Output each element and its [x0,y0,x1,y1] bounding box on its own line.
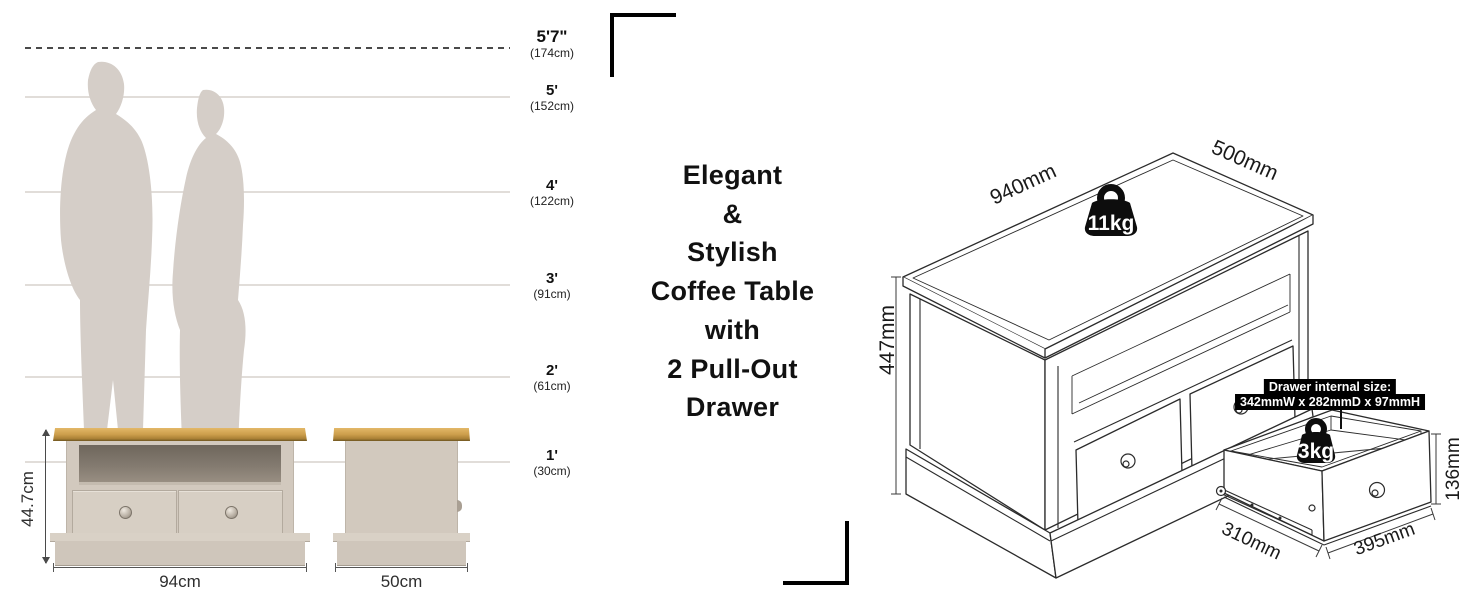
dimension-tick [53,563,54,572]
height-marker-cm: (61cm) [512,379,592,393]
table-width-label: 940mm [987,159,1060,209]
dimension-tick [335,563,336,572]
height-marker-3ft: 3' (91cm) [512,271,592,301]
headline-line: with [595,311,870,350]
drawer-knob-3d-detail [1372,490,1378,496]
headline-line: Drawer [595,388,870,427]
note-leader-line [1340,410,1342,429]
table-height-label: 447mm [876,305,899,375]
crop-mark-top-left [610,13,676,77]
side-view-wood-top [333,428,470,441]
drawer-internal-size-note-line1: Drawer internal size: [1264,379,1396,395]
headline-line: Elegant [595,156,870,195]
product-dimension-infographic: 5'7" (174cm) 5' (152cm) 4' (122cm) 3' (9… [0,0,1464,600]
table-weight-label: 11kg [1088,212,1135,235]
side-width-dimension-line [335,567,468,568]
arrow-up-icon [42,429,50,436]
coffee-table-3d: 447mm 940mm 500mm 11kg [876,136,1318,578]
drawer-weight-label: 3kg [1298,440,1334,463]
headline-line: 2 Pull-Out [595,350,870,389]
dimension-tick [467,563,468,572]
height-marker-feet: 1' [512,448,592,464]
crop-mark-bottom-right [783,521,849,585]
height-marker-feet: 5'7" [512,28,592,46]
height-marker-cm: (91cm) [512,287,592,301]
front-height-dimension-line [45,430,46,563]
headline-line: Stylish [595,233,870,272]
side-width-label: 50cm [335,572,468,592]
dimension-tick [1316,545,1322,557]
height-marker-4ft: 4' (122cm) [512,178,592,208]
height-marker-feet: 4' [512,178,592,194]
side-view-plinth-base [337,541,466,566]
drawer-width-label: 310mm [1218,518,1284,564]
height-marker-feet: 2' [512,363,592,379]
height-marker-cm: (152cm) [512,99,592,113]
height-marker-2ft: 2' (61cm) [512,363,592,393]
drawer-knob-left-detail [1123,461,1129,467]
height-marker-cm: (30cm) [512,464,592,478]
isometric-drawings: 447mm 940mm 500mm 11kg [860,100,1464,600]
height-marker-5ft: 5' (152cm) [512,83,592,113]
front-width-label: 94cm [53,572,307,592]
arrow-down-icon [42,557,50,564]
height-marker-cm: (174cm) [512,46,592,60]
headline-line: & [595,195,870,234]
side-view-carcass [345,441,458,533]
front-view-open-shelf [79,445,281,485]
drawer-height-label: 136mm [1443,437,1464,500]
headline: Elegant & Stylish Coffee Table with 2 Pu… [595,156,870,427]
height-marker-feet: 5' [512,83,592,99]
height-marker-feet: 3' [512,271,592,287]
height-marker-cm: (122cm) [512,194,592,208]
height-marker-1ft: 1' (30cm) [512,448,592,478]
drawer-internal-size-note-line2: 342mmW x 282mmD x 97mmH [1235,394,1425,410]
drawer-knob-left [119,506,132,519]
headline-line: Coffee Table [595,272,870,311]
front-view-wood-top [53,428,307,441]
front-width-dimension-line [53,567,307,568]
front-view-plinth-base [55,541,305,566]
dimension-tick [306,563,307,572]
drawer-knob-right [225,506,238,519]
front-height-label: 44.7cm [18,459,38,539]
height-marker-5ft7: 5'7" (174cm) [512,28,592,60]
drawer-screw-icon [1309,505,1315,511]
